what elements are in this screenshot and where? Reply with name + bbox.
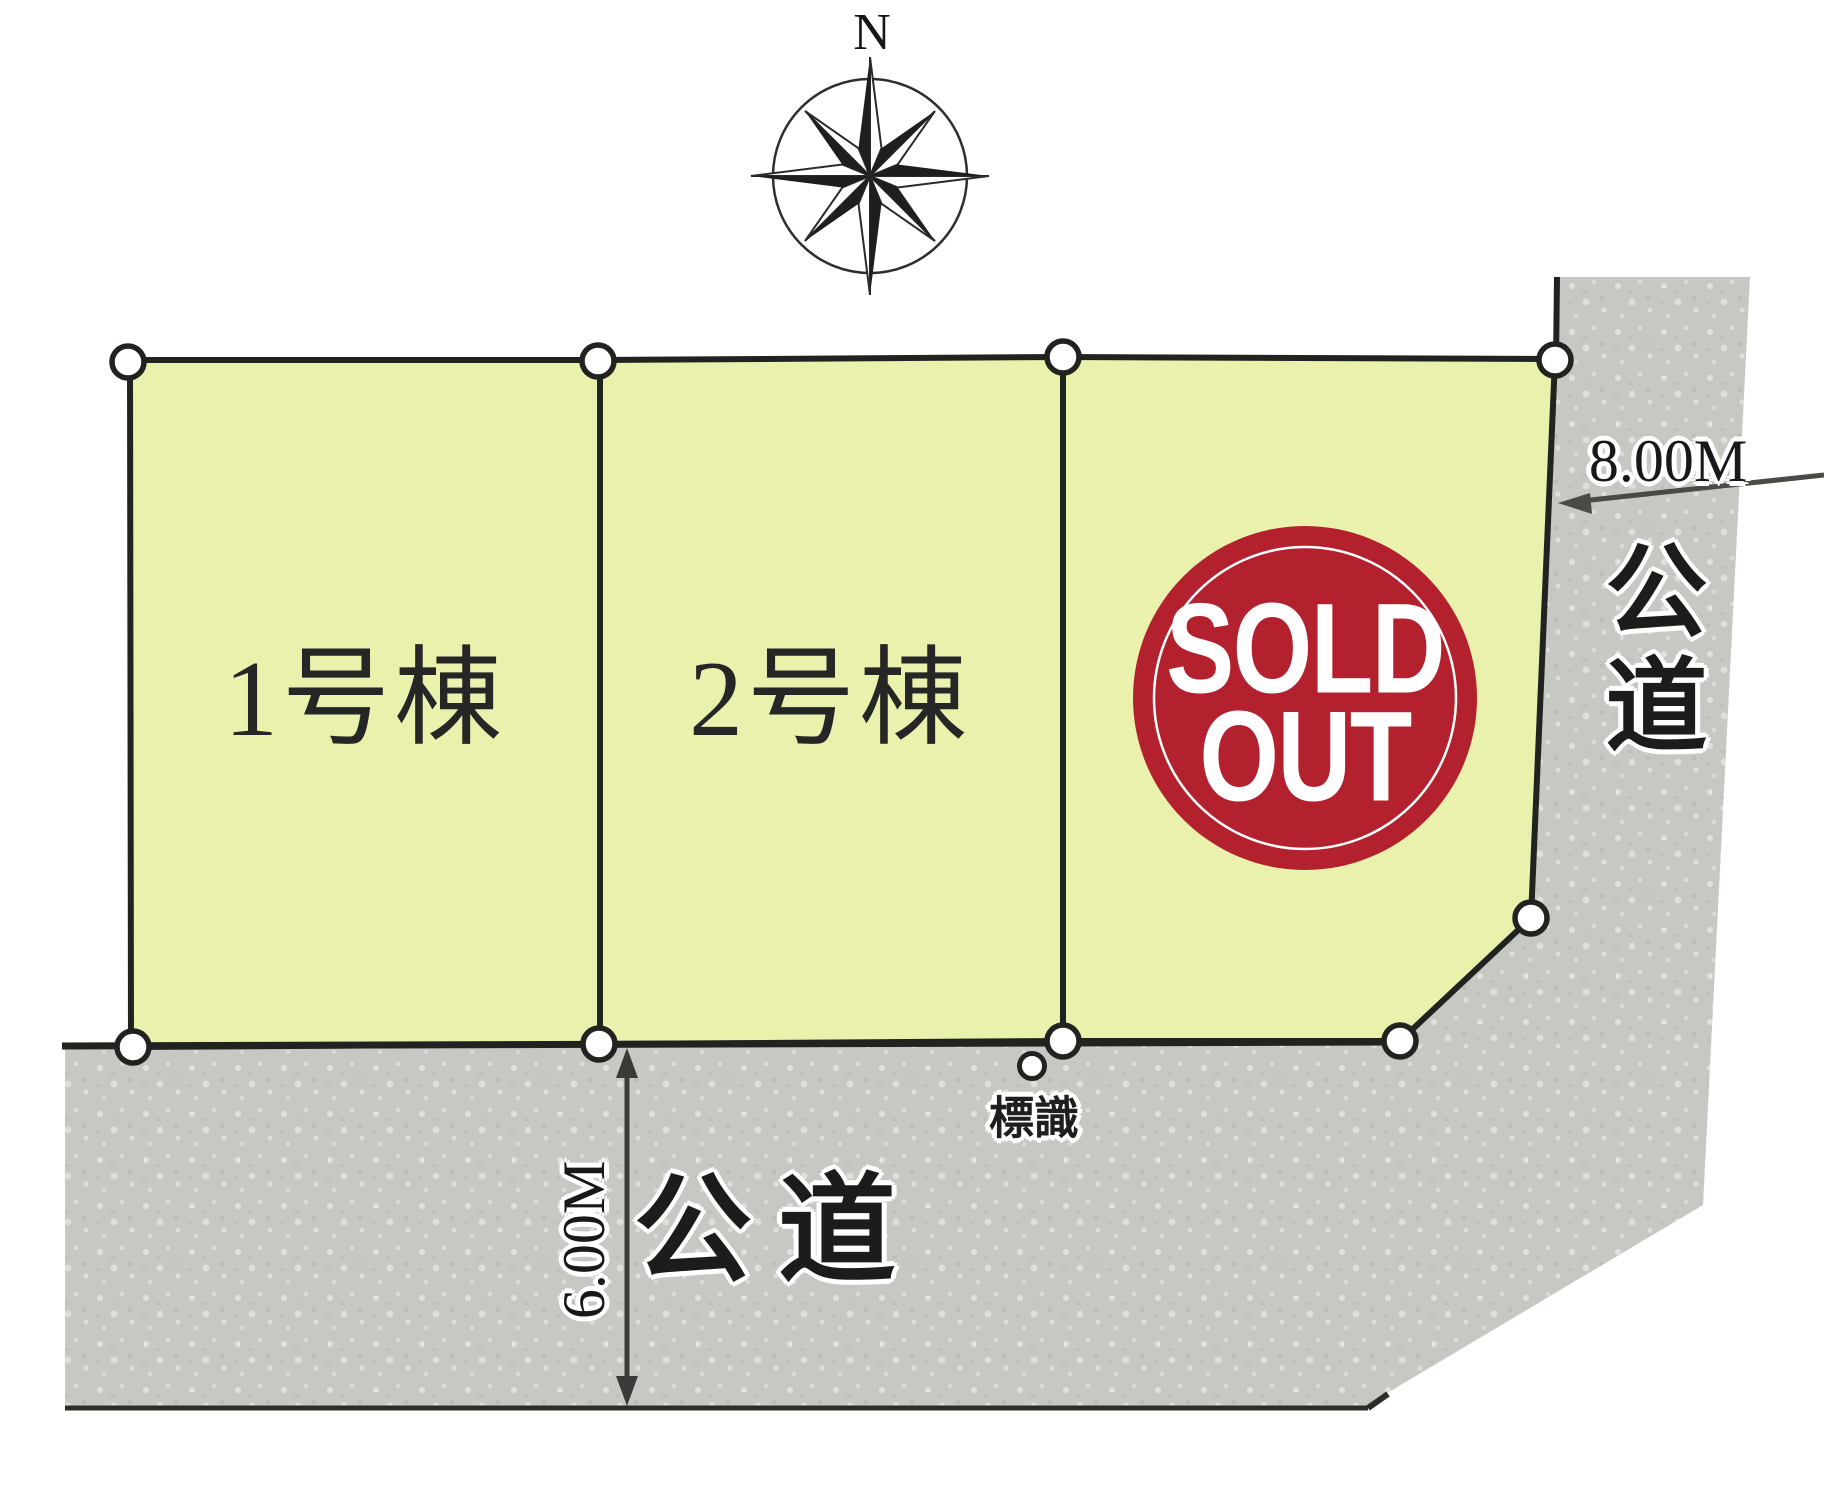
survey-point [117, 1031, 149, 1063]
survey-point [1384, 1025, 1416, 1057]
east-road-width-label: 8.00M [1589, 431, 1747, 491]
survey-point [1515, 902, 1547, 934]
sold-out-line2: OUT [1166, 703, 1444, 811]
compass-north-label: N [853, 7, 891, 59]
south-road-name-label: 公道 [634, 1173, 922, 1291]
road-top-boundary-line [62, 1042, 1400, 1046]
survey-point [582, 345, 614, 377]
sold-out-text: SOLD OUT [1166, 595, 1444, 810]
survey-point [583, 1028, 615, 1060]
lot-1-label: 1号棟 [224, 646, 506, 754]
sign-label: 標識 [989, 1097, 1079, 1142]
south-road-width-label: 6.00M [554, 1161, 614, 1319]
survey-point [1047, 1025, 1079, 1057]
sign-marker-circle [1020, 1054, 1045, 1079]
survey-point [1047, 341, 1079, 373]
compass-rose-icon [751, 57, 989, 295]
survey-point [1539, 344, 1571, 376]
lot-2-label: 2号棟 [689, 646, 971, 754]
east-road-name-label: 公道 [1595, 538, 1697, 766]
survey-point [112, 346, 144, 378]
lot-layout-diagram: N 1号棟 2号棟 SOLD OUT 8.00M 公道 6.00M 公道 標識 [0, 0, 1824, 1512]
